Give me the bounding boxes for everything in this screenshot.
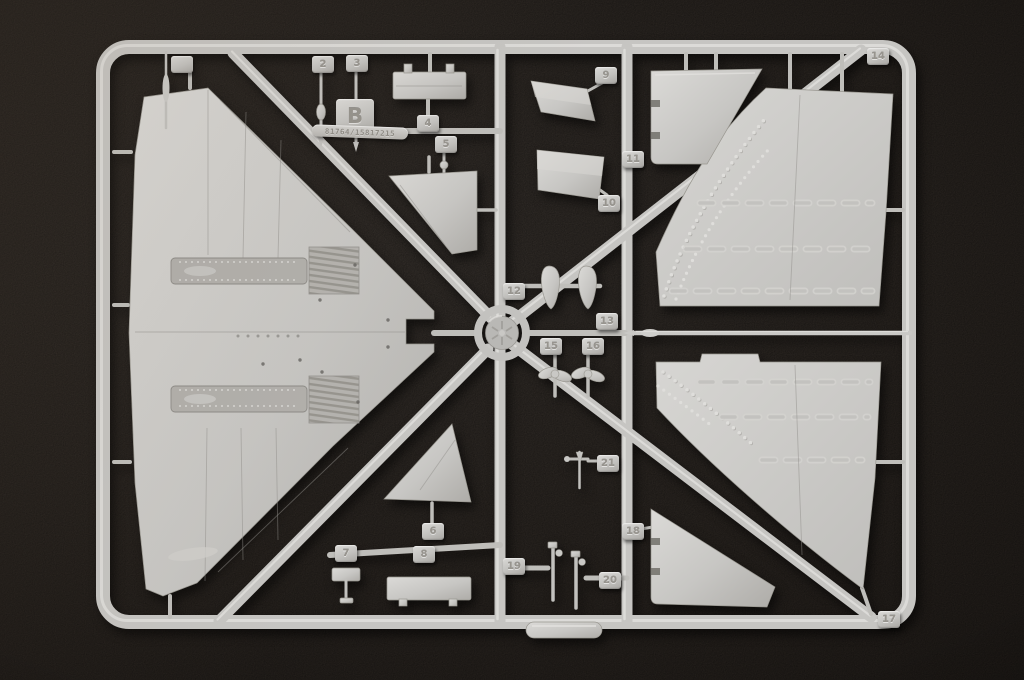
part-pill [526, 622, 602, 638]
part-tab-10: 10 [598, 195, 620, 212]
part-pitot-21 [564, 452, 588, 488]
part-t-pin-left [548, 542, 563, 600]
part-tab-8: 8 [413, 546, 435, 563]
part-tab-5: 5 [435, 136, 457, 153]
part-fin-upper-middle [389, 171, 477, 254]
part-flap-9 [531, 81, 595, 121]
part-tab-18: 18 [622, 523, 644, 540]
part-tab-14: 14 [867, 48, 889, 65]
part-t-pin-right [571, 551, 586, 608]
part-delta-fuselage [129, 88, 434, 596]
part-tab-19: 19 [503, 558, 525, 575]
part-pin-5 [440, 152, 448, 174]
part-tab-1 [171, 56, 193, 73]
part-bracket-7 [332, 568, 360, 603]
part-tab-13: 13 [596, 313, 618, 330]
center-hub-part [478, 309, 526, 357]
part-tab-12: 12 [503, 283, 525, 300]
part-tab-4: 4 [417, 115, 439, 132]
part-tab-7: 7 [335, 545, 357, 562]
photo-of-sprue: 2 3 4 5 6 7 8 9 10 11 12 13 14 15 16 17 … [0, 0, 1024, 680]
part-flap-10 [537, 150, 604, 199]
part-tab-15: 15 [540, 338, 562, 355]
part-tab-16: 16 [582, 338, 604, 355]
part-tab-20: 20 [599, 572, 621, 589]
part-long-rod [623, 329, 910, 337]
part-tab-9: 9 [595, 67, 617, 84]
sprue-b [0, 0, 1024, 680]
part-tab-3: 3 [346, 55, 368, 72]
part-tab-2: 2 [312, 56, 334, 73]
part-tab-17: 17 [878, 611, 900, 628]
part-teardrop-right [578, 266, 596, 309]
part-tab-21: 21 [597, 455, 619, 472]
part-tab-6: 6 [422, 523, 444, 540]
part-strip-8 [387, 577, 471, 606]
part-tab-11: 11 [622, 151, 644, 168]
